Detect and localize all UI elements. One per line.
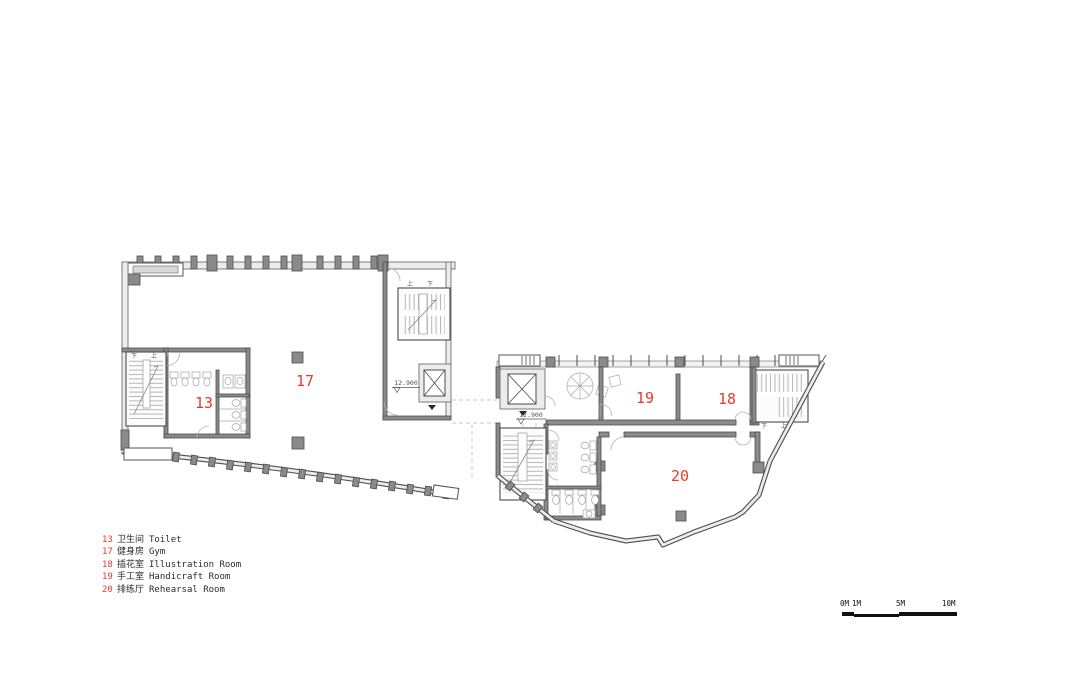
room-legend: 13卫生间Toilet 17健身房Gym 18插花室Illustration R… — [102, 534, 241, 596]
elevation-marker-connector: 12.900 — [516, 411, 546, 424]
stair-up-label: 上 — [407, 280, 413, 288]
legend-row-13: 13卫生间Toilet — [102, 534, 241, 546]
elevator-lobby-south-wall — [383, 416, 451, 420]
elevator-right — [500, 369, 555, 416]
legend-row-20: 20排练厅Rehearsal Room — [102, 584, 241, 596]
stair-northeast: 上 下 — [387, 268, 450, 340]
gym-east-wall — [383, 262, 387, 420]
legend-name-en: Toilet — [149, 535, 182, 545]
legend-name-zh: 卫生间 — [117, 535, 144, 545]
south-curved-wall — [554, 461, 770, 545]
room-17-label: 17 — [296, 372, 314, 390]
scale-label-1m: 1M — [852, 599, 861, 608]
scale-label-5m: 5M — [896, 599, 905, 608]
plant-decoration — [567, 373, 621, 399]
stair-connector — [500, 428, 546, 500]
stair-east: 下 上 — [752, 367, 808, 430]
legend-number: 20 — [102, 584, 117, 596]
legend-name-zh: 排练厅 — [117, 585, 144, 595]
room-13-label: 13 — [195, 394, 213, 412]
legend-name-zh: 手工室 — [117, 572, 144, 582]
right-building: 下 上 — [496, 355, 826, 545]
gym-column — [292, 352, 303, 363]
stair-down-label: 下 — [761, 423, 767, 430]
legend-number: 13 — [102, 534, 117, 546]
legend-row-17: 17健身房Gym — [102, 546, 241, 558]
corridor-double-doors — [600, 404, 751, 450]
toilet-right-block — [544, 424, 601, 520]
room20-north-wall — [624, 432, 736, 437]
room20-column-east — [753, 462, 764, 473]
scale-label-0m: 0M — [840, 599, 849, 608]
legend-number: 17 — [102, 546, 117, 558]
elevator-left — [384, 364, 451, 415]
floor-plan-page: 下 上 上 下 — [0, 0, 1080, 692]
svg-text:12.900: 12.900 — [394, 379, 418, 387]
legend-row-19: 19手工室Handicraft Room — [102, 571, 241, 583]
room-20-label: 20 — [671, 467, 689, 485]
scale-segment-2 — [854, 614, 899, 617]
legend-name-en: Handicraft Room — [149, 572, 230, 582]
stair-down-label: 下 — [131, 353, 137, 360]
legend-number: 19 — [102, 571, 117, 583]
legend-number: 18 — [102, 559, 117, 571]
toilet13-north-wall — [122, 348, 250, 352]
stair-west: 下 上 — [126, 352, 166, 426]
stair-up-label: 上 — [151, 352, 157, 360]
legend-name-en: Gym — [149, 547, 165, 557]
legend-row-18: 18插花室Illustration Room — [102, 559, 241, 571]
northwest-louver — [124, 263, 183, 285]
room-18-label: 18 — [718, 390, 736, 408]
room20-column — [676, 511, 686, 521]
gym-column-south — [292, 437, 304, 449]
left-east-wall-lower — [446, 400, 451, 418]
legend-name-zh: 健身房 — [117, 547, 144, 557]
scale-segment-3 — [899, 612, 957, 616]
south-colonnade — [121, 430, 459, 499]
room19-18-divider — [676, 374, 680, 422]
scale-label-10m: 10M — [942, 599, 956, 608]
legend-name-en: Illustration Room — [149, 560, 241, 570]
left-building: 下 上 上 下 — [121, 255, 459, 499]
elevation-marker-left: 12.900 — [392, 379, 420, 393]
scale-bar: 0M 1M 5M 10M — [838, 599, 964, 625]
corridor-north-wall — [546, 420, 736, 425]
right-louver-west — [499, 355, 540, 366]
room-19-label: 19 — [636, 389, 654, 407]
legend-name-zh: 插花室 — [117, 560, 144, 570]
stair-down-label: 下 — [427, 281, 433, 288]
legend-name-en: Rehearsal Room — [149, 585, 225, 595]
scale-segment-1 — [842, 612, 854, 616]
